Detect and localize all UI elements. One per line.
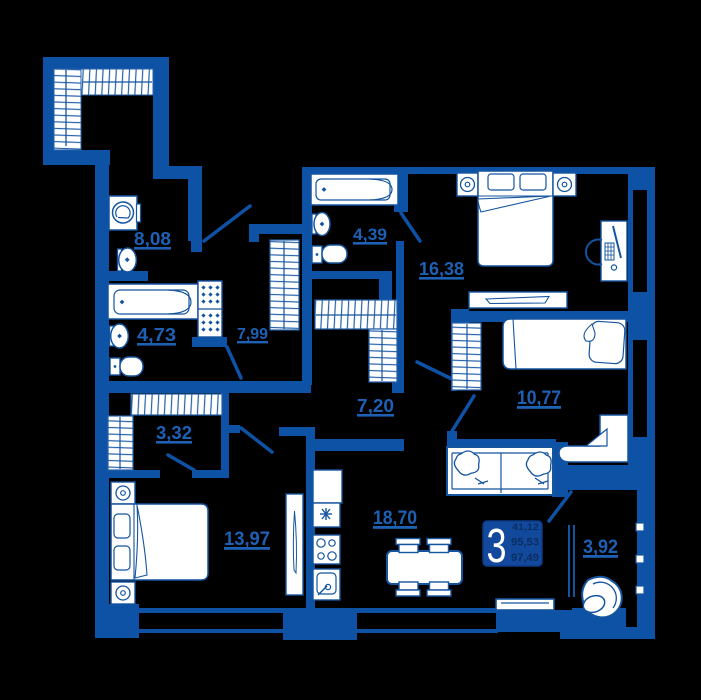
svg-text:13,97: 13,97 — [224, 529, 270, 550]
svg-text:41,12: 41,12 — [512, 522, 539, 533]
svg-text:16,38: 16,38 — [419, 259, 464, 279]
svg-text:97,49: 97,49 — [511, 552, 539, 564]
svg-text:3: 3 — [487, 520, 507, 573]
svg-text:7,99: 7,99 — [237, 326, 268, 343]
svg-text:4,39: 4,39 — [353, 225, 387, 244]
svg-text:10,77: 10,77 — [517, 388, 561, 409]
svg-text:18,70: 18,70 — [373, 508, 417, 529]
svg-text:7,20: 7,20 — [357, 396, 394, 416]
svg-text:95,53: 95,53 — [511, 537, 539, 549]
svg-text:4,73: 4,73 — [137, 325, 176, 345]
svg-text:8,08: 8,08 — [134, 229, 171, 249]
svg-text:3,32: 3,32 — [156, 423, 192, 443]
svg-text:3,92: 3,92 — [583, 537, 618, 558]
